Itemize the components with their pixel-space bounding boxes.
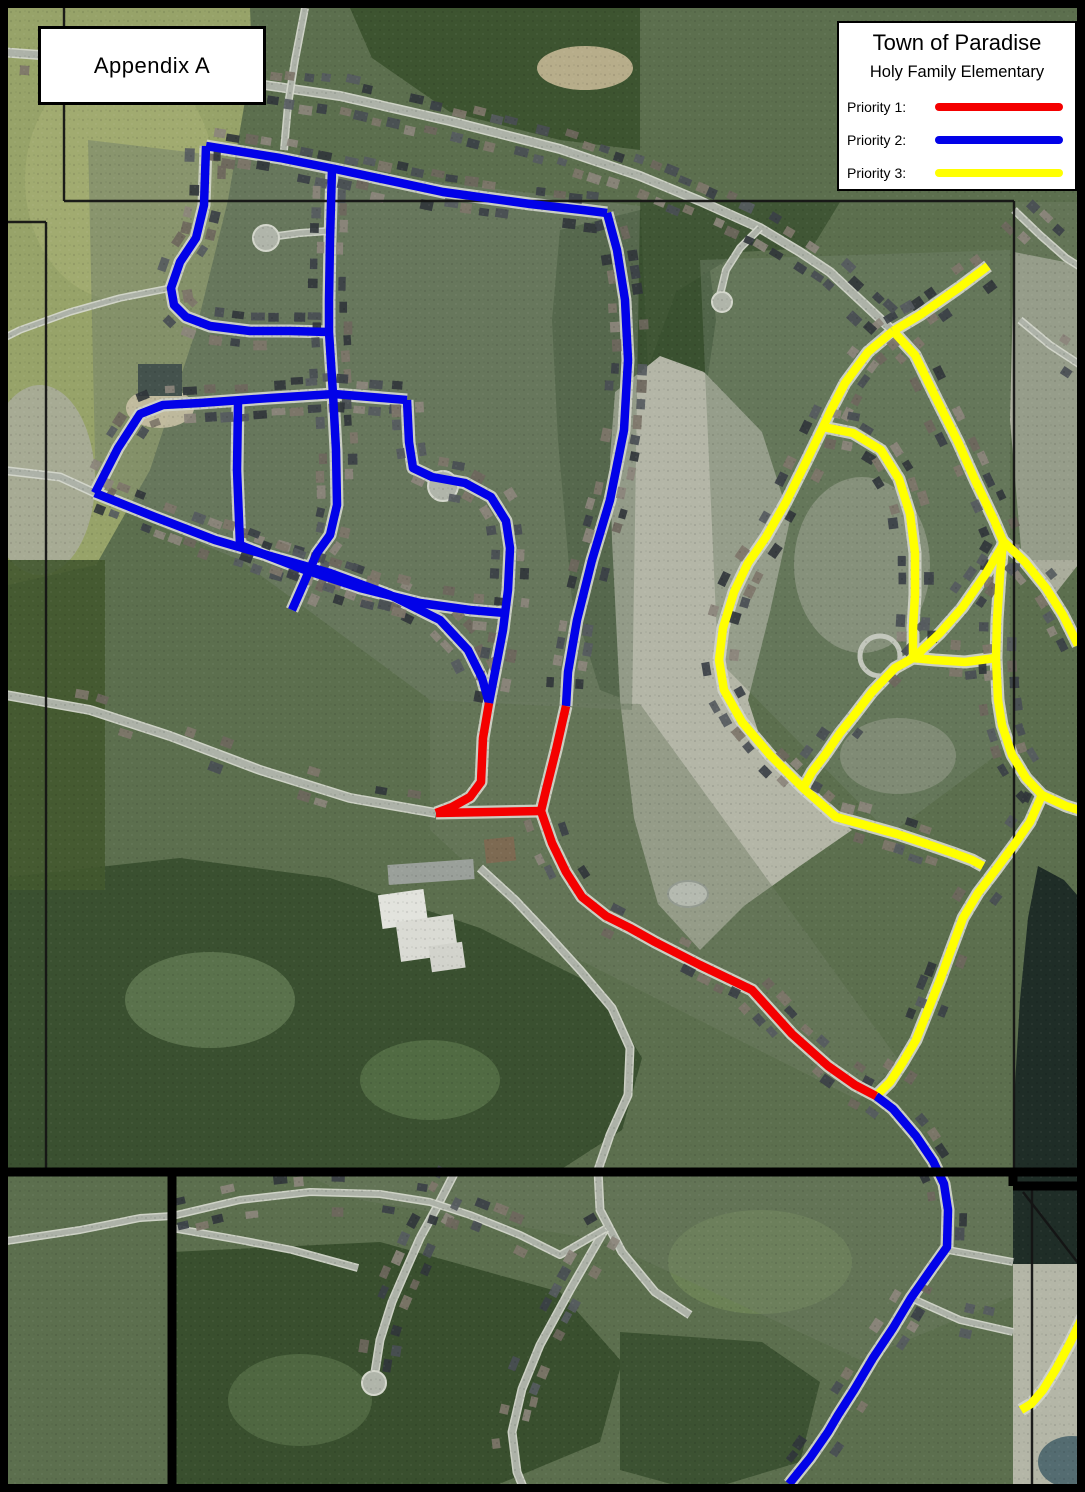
map-sheet: Appendix A Town of Paradise Holy Family … [0, 0, 1085, 1492]
legend-title: Town of Paradise [839, 30, 1075, 56]
legend: Town of Paradise Holy Family Elementary … [837, 21, 1077, 191]
priority-2-label: Priority 2: [847, 132, 935, 148]
priority-1-route-red-school-front [436, 811, 541, 813]
priority-1-label: Priority 1: [847, 99, 935, 115]
priority-1-swatch [935, 103, 1063, 111]
priority-3-label: Priority 3: [847, 165, 935, 181]
legend-subtitle: Holy Family Elementary [839, 63, 1075, 82]
priority-2-swatch [935, 136, 1063, 144]
priority-3-swatch [935, 169, 1063, 177]
appendix-label-box: Appendix A [38, 26, 266, 105]
legend-item-priority-1: Priority 1: [847, 99, 1063, 115]
legend-item-priority-2: Priority 2: [847, 132, 1063, 148]
legend-item-priority-3: Priority 3: [847, 165, 1063, 181]
aerial-map-canvas [8, 8, 1077, 1484]
appendix-label: Appendix A [94, 53, 210, 79]
priority-2-route-blue-connector [237, 403, 240, 545]
